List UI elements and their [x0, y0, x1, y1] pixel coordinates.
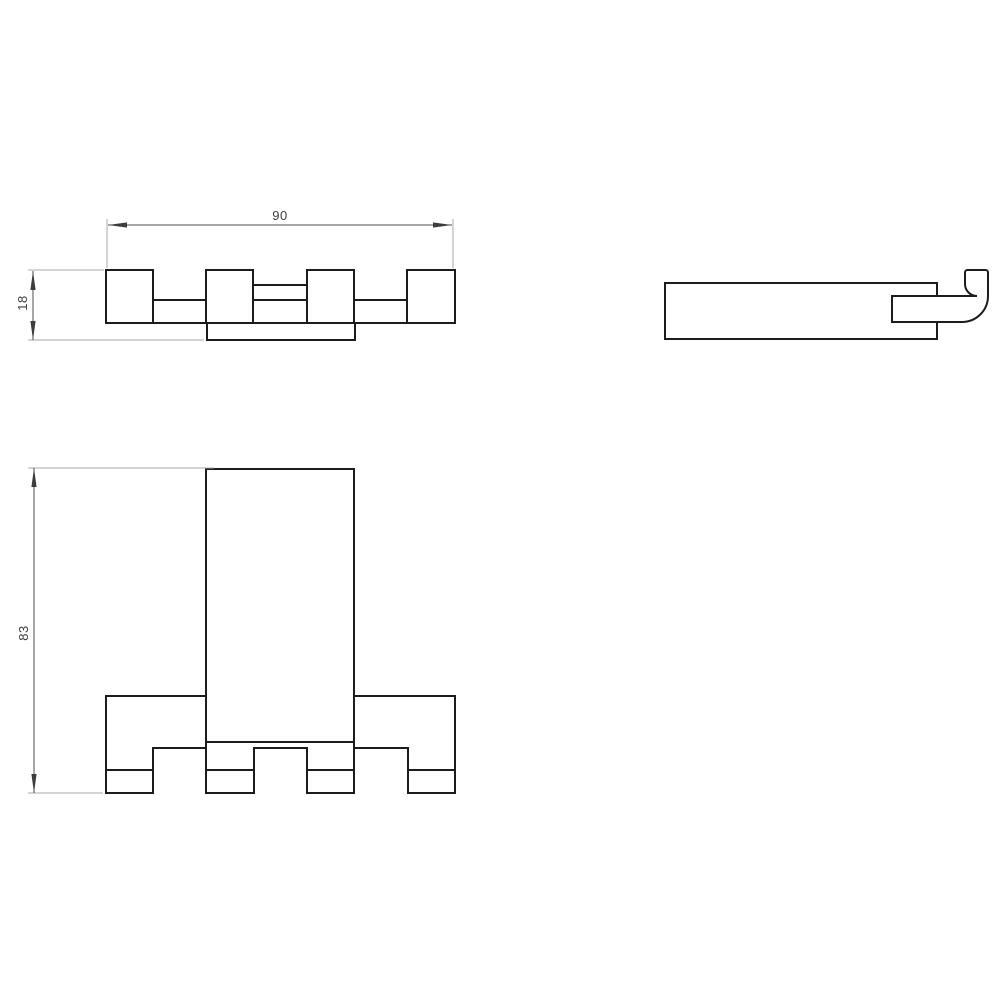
- side-view-hook: [892, 270, 988, 322]
- arrow-left-icon: [108, 222, 127, 227]
- arrow-right-icon: [433, 222, 452, 227]
- dimension-depth-extension-lines: [28, 270, 204, 340]
- dimension-height: 83: [16, 468, 214, 793]
- side-view: [665, 270, 988, 339]
- dimension-depth: 18: [15, 270, 204, 340]
- top-view-tab-2: [206, 270, 253, 323]
- front-view-prong-sides: [153, 742, 408, 793]
- drawing-svg: 90 18 83: [0, 0, 1000, 1000]
- top-view-tab-3: [307, 270, 354, 323]
- dimension-width-label: 90: [272, 208, 287, 223]
- top-view-tab-4: [407, 270, 455, 323]
- arrow-up-icon: [30, 271, 35, 290]
- front-view: [106, 469, 455, 793]
- arrow-down-icon: [30, 321, 35, 340]
- arrow-down-icon: [31, 774, 36, 793]
- top-view: [106, 270, 455, 340]
- front-view-center-plate: [206, 469, 354, 742]
- arrow-up-icon: [31, 468, 36, 487]
- top-view-tab-1: [106, 270, 153, 323]
- dimension-width: 90: [107, 208, 453, 268]
- top-view-lower-plate: [207, 323, 355, 340]
- dimension-height-extension-lines: [28, 468, 214, 793]
- front-view-band-sides: [106, 696, 455, 793]
- dimension-height-label: 83: [16, 625, 31, 640]
- dimension-depth-label: 18: [15, 295, 30, 310]
- dimension-width-extension-lines: [107, 219, 453, 268]
- technical-drawing-canvas: 90 18 83: [0, 0, 1000, 1000]
